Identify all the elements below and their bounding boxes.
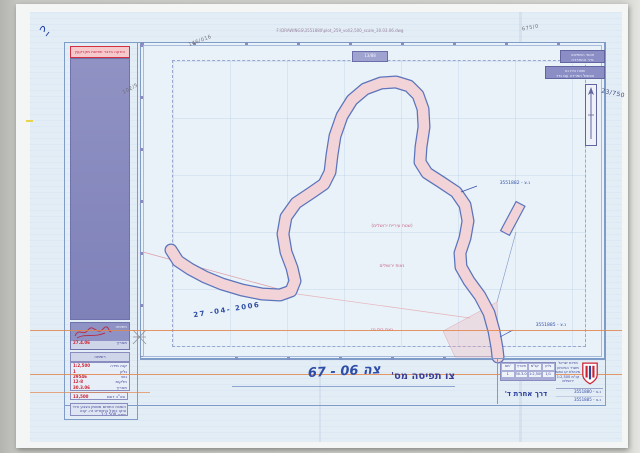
table-header-cell: תאריך <box>515 363 529 371</box>
org-line: ירושלים <box>556 379 580 384</box>
leader-line <box>461 186 477 192</box>
table-cell: 30.3.06 <box>515 371 529 379</box>
pencil-scribble <box>133 330 146 344</box>
map-area-label-a: (שטח עיריית ירושלים) <box>352 224 432 229</box>
table-cell: 1:2,500 <box>528 371 542 379</box>
ministry-shield-logo <box>581 361 599 385</box>
orange-line <box>30 330 622 331</box>
road-line <box>297 294 470 318</box>
order-underline <box>232 386 455 387</box>
leader-line <box>500 330 513 337</box>
orange-line <box>30 392 150 393</box>
org-line: מדינת ישראל <box>556 361 580 366</box>
coord-line: נ.צ - 3551880 <box>556 389 603 397</box>
pen-check-mark <box>40 26 49 36</box>
table-cell: 1/1 <box>542 371 556 379</box>
scanned-map-document: F:\DRAWINGS\3551880\plot_259_vol\2,500_s… <box>0 0 640 453</box>
table-header-cell: קנ"מ <box>528 363 542 371</box>
coordinate-label-bottom: נ.צ - 3551885 <box>514 323 566 328</box>
revision-table: מס' תאריך קנ"מ גליון 1 30.3.06 1:2,500 1… <box>500 362 556 381</box>
table-cell <box>542 378 556 380</box>
order-number-row: צו תפיסה מס' צה 06 - 67 <box>230 368 455 383</box>
road-name: דרך אחרת ד' <box>498 390 554 398</box>
table-cell <box>528 378 542 380</box>
seized-route-corridor <box>171 82 498 357</box>
yellow-mark <box>26 120 33 122</box>
coordinate-label-top: נ.צ - 3551882 <box>478 181 530 186</box>
table-cell: 1 <box>501 371 515 379</box>
coords-block: נ.צ - 3551880 נ.צ - 3551885 <box>556 388 603 403</box>
table-cell <box>515 378 529 380</box>
order-number-handwritten: צה 06 - 67 <box>308 362 381 381</box>
table-header-cell: גליון <box>542 363 556 371</box>
table-header-cell: מס' <box>501 363 515 371</box>
table-cell <box>501 378 515 380</box>
boundary-line <box>497 232 516 302</box>
coord-line: נ.צ - 3551885 <box>556 397 603 404</box>
title-strip-top-line <box>140 358 604 359</box>
detached-seized-segment <box>501 202 525 236</box>
map-area-label-b: נאות ירושלים <box>362 264 422 269</box>
org-block: מדינת ישראל משרד הביטחון מינהלת קו התפר … <box>556 361 580 384</box>
order-label: צו תפיסה מס' <box>391 371 455 382</box>
